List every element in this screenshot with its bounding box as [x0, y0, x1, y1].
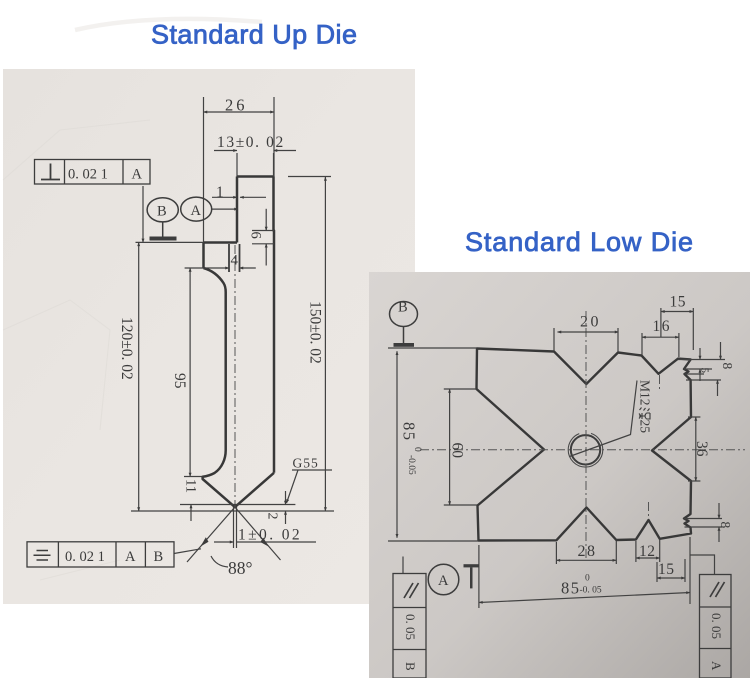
svg-text:A: A [191, 203, 202, 219]
svg-text:85: 85 [400, 422, 419, 442]
svg-text:B: B [403, 662, 418, 671]
svg-text:20: 20 [580, 314, 601, 331]
svg-text:A: A [132, 167, 143, 183]
svg-text:-0. 05: -0. 05 [580, 586, 602, 596]
svg-text:120±0. 02: 120±0. 02 [118, 317, 135, 380]
svg-text:4: 4 [231, 253, 239, 269]
svg-text:M12: M12 [638, 380, 653, 406]
svg-text:0. 02 1: 0. 02 1 [65, 549, 105, 565]
svg-text:1: 1 [216, 184, 224, 201]
svg-text:A: A [125, 549, 136, 565]
svg-text:0: 0 [412, 447, 422, 452]
svg-text:A: A [709, 661, 724, 671]
svg-text:15: 15 [670, 294, 687, 311]
svg-text:85: 85 [561, 579, 581, 598]
svg-text:2: 2 [265, 513, 280, 520]
svg-text:0. 05: 0. 05 [709, 613, 724, 639]
svg-text:B: B [398, 300, 408, 316]
svg-text:Standard Up Die: Standard Up Die [151, 20, 357, 50]
svg-text:0. 05: 0. 05 [403, 614, 418, 640]
svg-text:G55: G55 [293, 456, 319, 471]
svg-text:8: 8 [718, 522, 733, 529]
svg-text:A: A [438, 573, 449, 589]
svg-text:36: 36 [693, 441, 710, 457]
svg-text:13±0. 02: 13±0. 02 [217, 134, 285, 151]
svg-text:0. 02 1: 0. 02 1 [68, 167, 108, 183]
svg-text:16: 16 [653, 318, 672, 335]
svg-text:95: 95 [171, 373, 188, 389]
svg-text:150±0. 02: 150±0. 02 [307, 301, 324, 364]
svg-text:1±0. 02: 1±0. 02 [238, 527, 302, 544]
svg-text:11: 11 [183, 479, 199, 493]
svg-text:0: 0 [585, 574, 590, 584]
svg-text:15: 15 [658, 561, 675, 578]
svg-text:6: 6 [248, 232, 264, 239]
svg-text:26: 26 [225, 96, 248, 115]
svg-text:28: 28 [578, 543, 597, 560]
svg-text:25: 25 [638, 420, 653, 434]
svg-text:Standard Low Die: Standard Low Die [465, 227, 693, 257]
svg-text:12: 12 [639, 543, 656, 560]
svg-text:8: 8 [720, 363, 735, 370]
svg-text:B: B [154, 549, 164, 565]
svg-text:60: 60 [449, 443, 466, 459]
svg-text:88°: 88° [228, 558, 253, 578]
svg-text:-0.05: -0.05 [406, 455, 416, 475]
svg-text:5: 5 [699, 368, 711, 374]
svg-text:B: B [157, 204, 167, 220]
